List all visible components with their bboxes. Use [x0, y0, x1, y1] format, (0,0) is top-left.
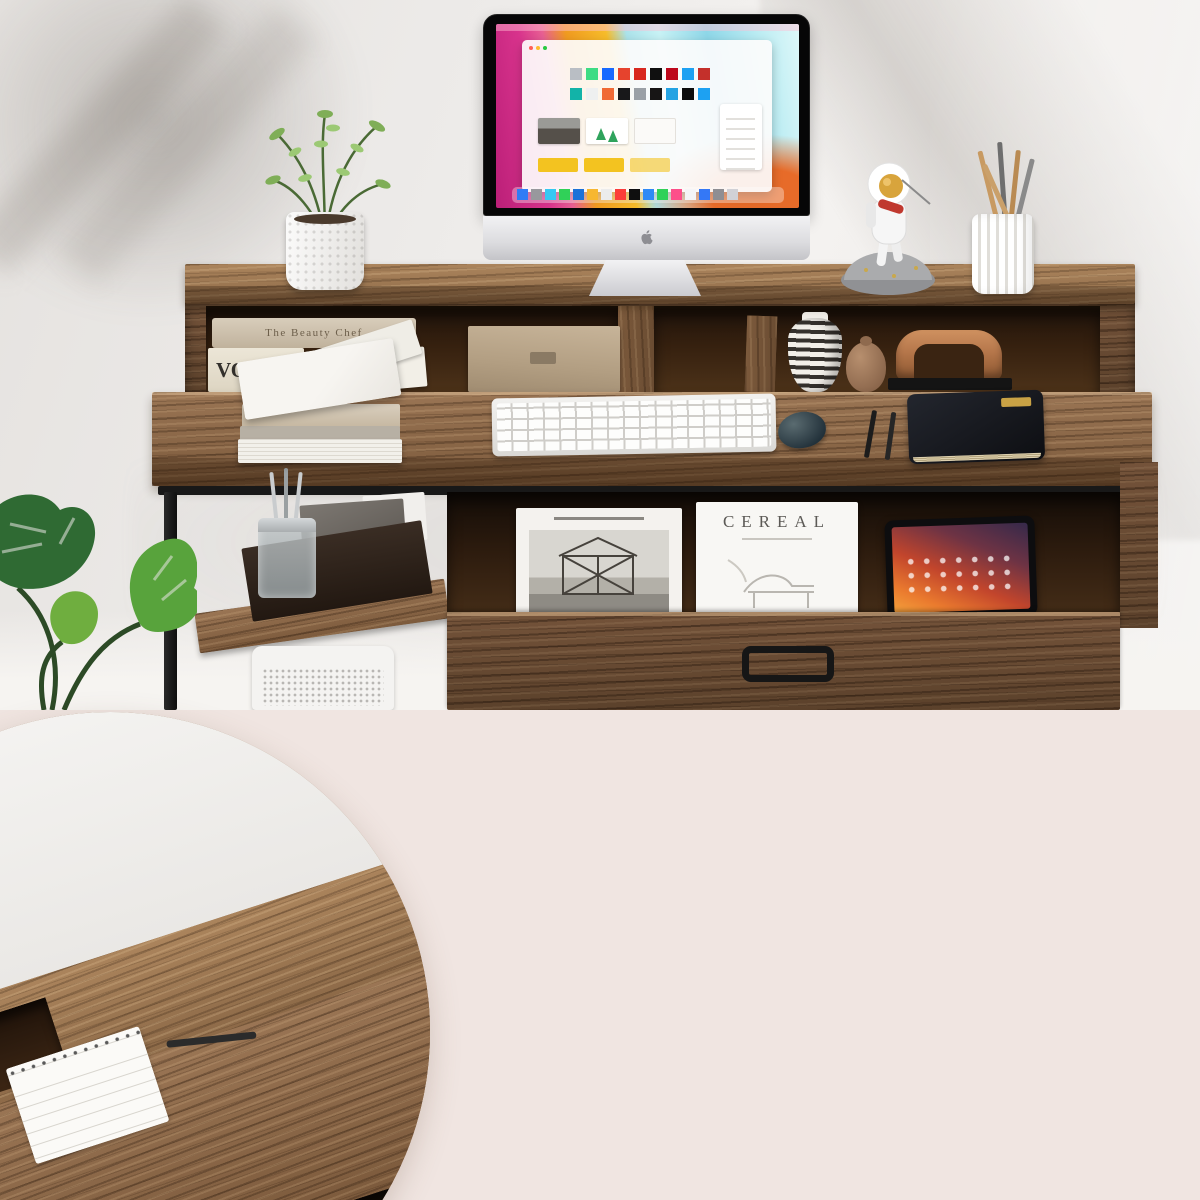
book-spine-title: The Beauty Chef [265, 327, 363, 339]
product-marketing-image: The Beauty Chef VOG [0, 0, 1200, 1200]
imac-display [496, 24, 799, 208]
white-plant-pot [286, 212, 364, 290]
inset-scene [0, 712, 430, 1200]
stacked-book [238, 439, 402, 463]
box-label-tag [530, 352, 556, 364]
striped-vase [788, 318, 842, 392]
pencil-cup [972, 214, 1034, 294]
app-icon-row [570, 68, 710, 80]
glass-diffuser-jar [258, 518, 316, 598]
imac-screen-bezel [483, 14, 810, 216]
fabric-storage-box [468, 326, 620, 392]
dock-icons [517, 189, 738, 200]
printer-grill [262, 668, 384, 706]
tablet [884, 515, 1037, 620]
drawer-edge-highlight [447, 612, 1120, 616]
tree-graphic [608, 130, 618, 142]
imac-computer [480, 14, 810, 300]
magazine-masthead [554, 517, 644, 520]
suggestion-card [584, 158, 624, 172]
keyboard-keys [497, 399, 772, 452]
chair-sketch [714, 552, 834, 614]
wood-stand [745, 315, 778, 392]
cereal-magazine-subtitle-line [742, 538, 812, 540]
detail-inset-photo [0, 712, 430, 1200]
suggestion-card [630, 158, 670, 172]
photo-thumbnail [634, 118, 676, 144]
monstera-plant [0, 452, 197, 710]
cereal-magazine: CEREAL [696, 502, 858, 622]
pot-soil [294, 214, 356, 224]
photo-thumbnail [586, 118, 628, 144]
browser-window [522, 40, 772, 192]
macos-dock [512, 187, 784, 203]
desk-side-panel [1120, 462, 1158, 628]
diffuser-stick [284, 468, 288, 524]
hutch-divider [618, 306, 654, 392]
window-traffic-lights [529, 46, 533, 50]
macos-menu-bar [496, 24, 799, 31]
notebook-gold-clasp [1001, 397, 1031, 407]
tree-graphic [596, 128, 606, 140]
app-icon-row [570, 88, 710, 100]
house-illustration [529, 530, 669, 612]
imac-chin [483, 216, 810, 260]
copper-decor-opening [914, 344, 984, 380]
suggestion-card [538, 158, 578, 172]
jar-lid [258, 518, 316, 532]
astronaut-figurine [836, 146, 940, 298]
tablet-app-icons [903, 551, 1020, 599]
keyboard [492, 394, 777, 457]
apple-logo-icon [640, 230, 654, 247]
tablet-screen [892, 523, 1031, 614]
magazine-house-cover [516, 508, 682, 622]
black-notebook [907, 390, 1045, 465]
copper-decor-object [896, 330, 1002, 380]
cereal-magazine-title: CEREAL [696, 512, 858, 532]
reminders-panel [720, 104, 762, 170]
desk-product-photo: The Beauty Chef VOG [0, 0, 1200, 710]
printer [252, 646, 394, 710]
marketing-section: GERÄUMIGE TISCHPLATTE Mit großer Aufbewa… [0, 710, 1200, 1200]
clay-pot [846, 342, 886, 392]
drawer-handle [742, 646, 834, 682]
pot-lid-knob [860, 336, 872, 346]
imac-stand-base [589, 258, 701, 296]
copper-decor-base [888, 378, 1012, 390]
photo-thumbnail [538, 118, 580, 144]
magazine-cover-photo [529, 530, 669, 612]
